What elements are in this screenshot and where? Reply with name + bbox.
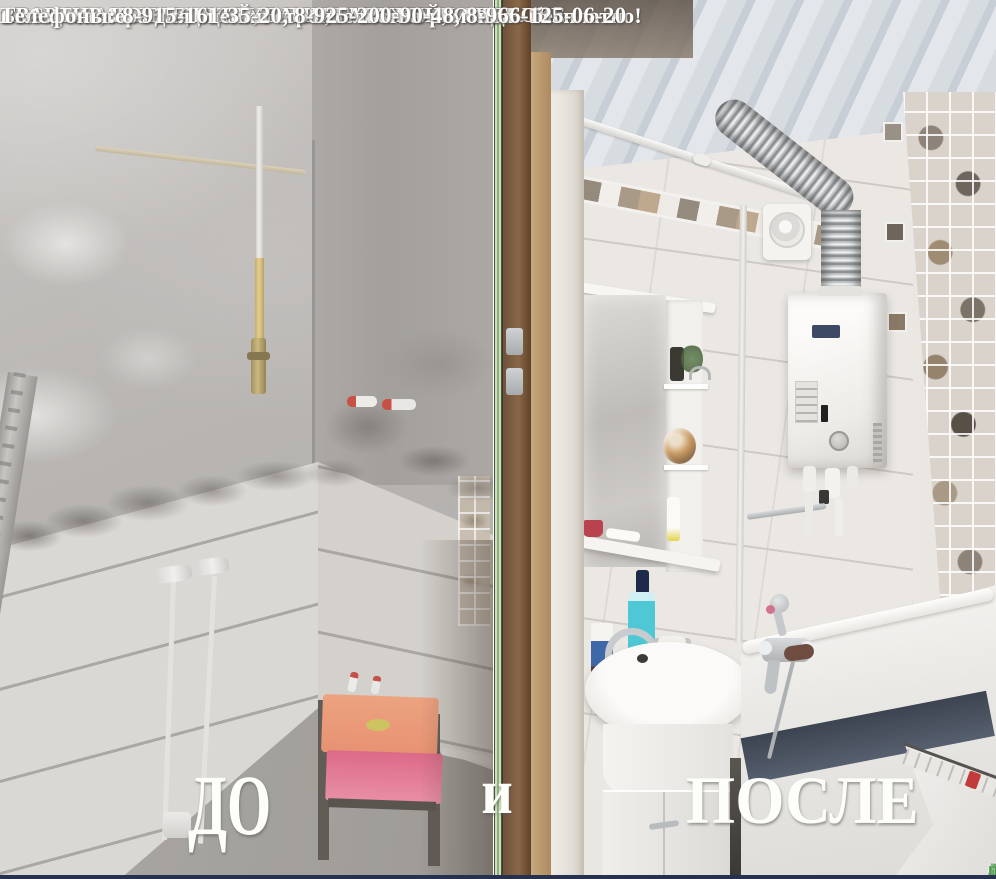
photo-divider-strip [493,0,503,879]
water-heater-badge [812,325,840,338]
mosaic-feature-panel [903,92,996,665]
door-hinge-1 [506,328,523,355]
gel-pump-top [636,570,649,594]
door-frame [503,0,531,879]
heater-drop-pipe-2 [835,498,843,536]
decor-glass-ball [663,428,696,464]
mosaic-accent-square-1 [883,122,903,142]
red-cup [583,520,603,537]
side-shelf-plank-1 [664,384,708,389]
chrome-hook [689,366,711,380]
side-shelf-plank-2 [664,465,708,470]
after-label: ПОСЛЕ [686,766,919,834]
water-heater-knob [829,431,849,451]
heater-fitting-1 [803,466,816,492]
door-hinge-2 [506,368,523,395]
mosaic-accent-square-2 [885,222,905,242]
water-heater-window [821,405,828,422]
heater-gas-tap [819,490,829,504]
water-heater-vents [873,423,882,465]
cabinet-door-line [663,792,665,879]
door-leaf [551,90,584,879]
before-after-photo-collage: ДО [0,0,996,879]
extractor-fan-icon [769,212,805,248]
before-photo: ДО [0,0,493,879]
mosaic-accent-square-3 [887,312,907,332]
bottom-border-line [0,875,996,879]
shower-holder [766,605,775,614]
heater-fitting-3 [847,466,858,488]
yellow-bottle [667,497,680,541]
after-photo: ПОСЛЕ ЛЫТКАРИНОnline [503,0,996,879]
doorway-top-shadow [503,0,693,58]
sink-drain [637,654,648,663]
water-heater-flue-collar [818,286,862,296]
heater-drop-pipe-1 [805,494,813,536]
conjunction-label: и [480,760,514,824]
before-label: ДО [188,762,271,848]
photo-fade-overlay [0,0,493,879]
water-heater-sticker [795,381,818,423]
mixer-escutcheon-left [758,641,772,655]
door-jamb [531,52,551,879]
